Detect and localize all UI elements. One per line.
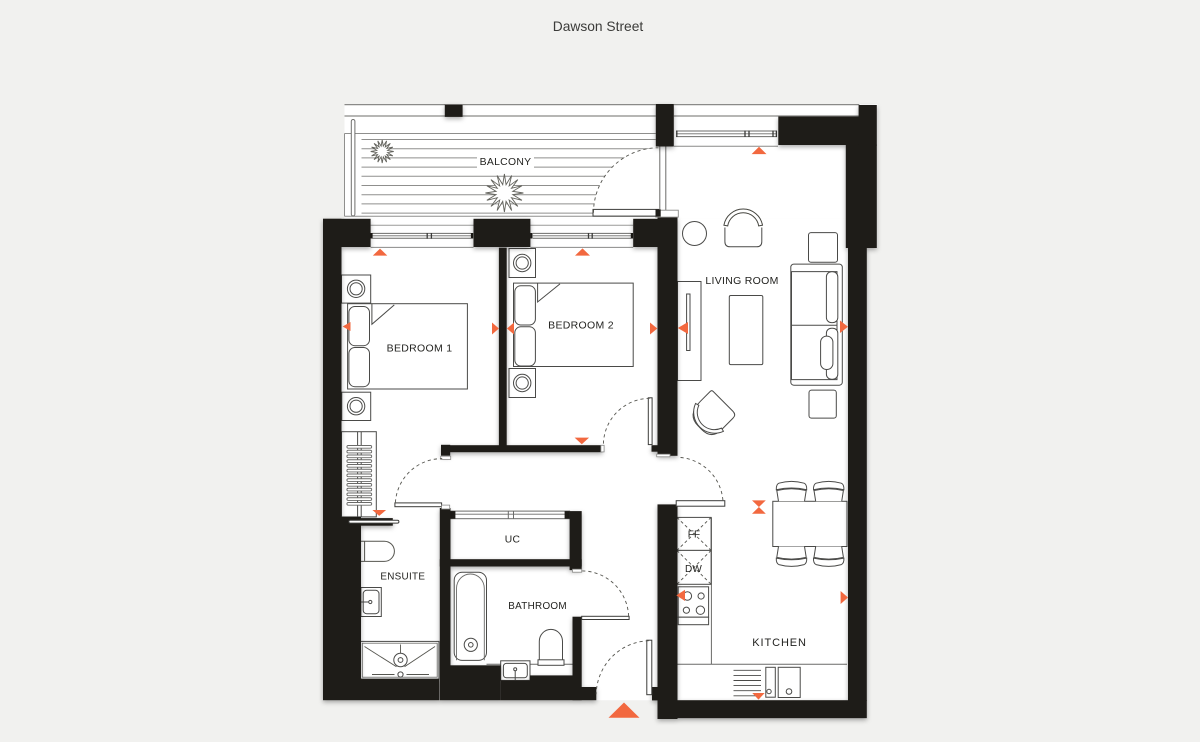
svg-text:ENSUITE: ENSUITE <box>380 571 425 582</box>
svg-text:Dawson Street: Dawson Street <box>553 19 644 34</box>
svg-text:BALCONY: BALCONY <box>480 157 532 168</box>
svg-text:DW: DW <box>685 564 702 575</box>
svg-text:UC: UC <box>505 534 521 545</box>
svg-text:BATHROOM: BATHROOM <box>508 601 567 612</box>
svg-text:FF: FF <box>688 530 701 541</box>
svg-text:LIVING ROOM: LIVING ROOM <box>705 275 778 287</box>
svg-text:KITCHEN: KITCHEN <box>752 637 807 649</box>
svg-text:BEDROOM 2: BEDROOM 2 <box>548 320 614 332</box>
svg-text:BEDROOM 1: BEDROOM 1 <box>387 342 453 354</box>
